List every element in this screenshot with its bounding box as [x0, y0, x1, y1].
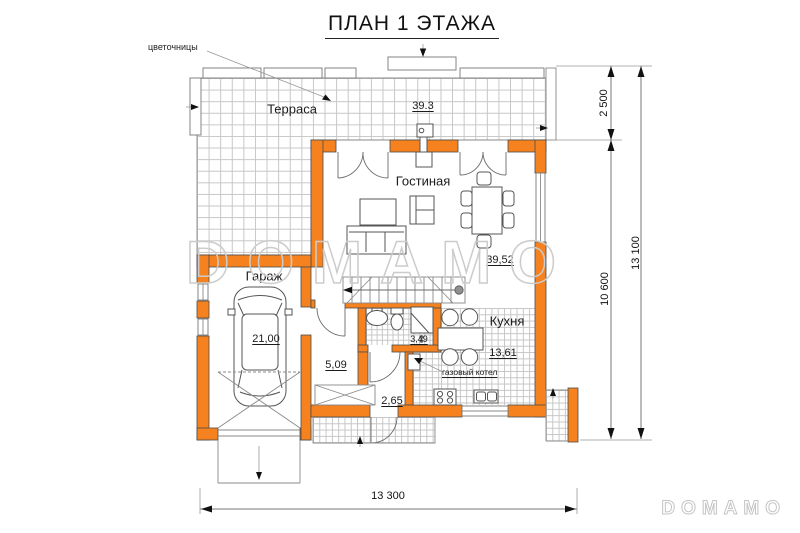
terrace-label: Терраса — [267, 102, 317, 117]
living-room-area: 39,52 — [486, 254, 514, 266]
side-porch-outline — [546, 388, 568, 441]
terrace-step-arrows — [186, 104, 548, 131]
kitchen-sink — [474, 390, 498, 403]
floor-plan-canvas: ПЛАН 1 ЭТАЖА цветочницы газовый котел Те… — [0, 0, 800, 533]
tv-stand — [410, 196, 434, 224]
kitchen-label: Кухня — [490, 314, 525, 329]
driveway — [218, 440, 300, 483]
kitchen-island — [438, 328, 483, 350]
dining-set — [461, 172, 514, 248]
plan-title: ПЛАН 1 ЭТАЖА — [325, 12, 499, 39]
hallway-area: 5,09 — [325, 359, 346, 371]
dim-house-depth: 10 600 — [599, 272, 611, 306]
terrace-area: 39.3 — [412, 100, 433, 112]
entry-area: 2,65 — [381, 395, 402, 407]
gas-boiler — [408, 354, 443, 372]
flower-boxes — [190, 44, 544, 135]
dim-total-width: 13 300 — [371, 490, 405, 502]
gas-boiler-callout: газовый котел — [442, 367, 497, 377]
closet — [315, 385, 375, 405]
stove — [434, 389, 456, 405]
living-room-label: Гостиная — [396, 174, 451, 189]
sofa — [347, 226, 406, 254]
plan-drawing — [0, 0, 800, 533]
garage-area: 21,00 — [252, 333, 280, 345]
dim-terrace-depth: 2 500 — [598, 89, 610, 117]
car — [228, 287, 292, 406]
garage-label: Гараж — [246, 269, 283, 284]
flower-boxes-callout: цветочницы — [148, 42, 198, 52]
staircase — [343, 277, 465, 303]
bathroom-area: 3,49 — [410, 334, 428, 344]
kitchen-area: 13,61 — [489, 347, 517, 359]
coffee-table — [360, 199, 396, 225]
dim-total-height: 13 100 — [630, 236, 642, 270]
